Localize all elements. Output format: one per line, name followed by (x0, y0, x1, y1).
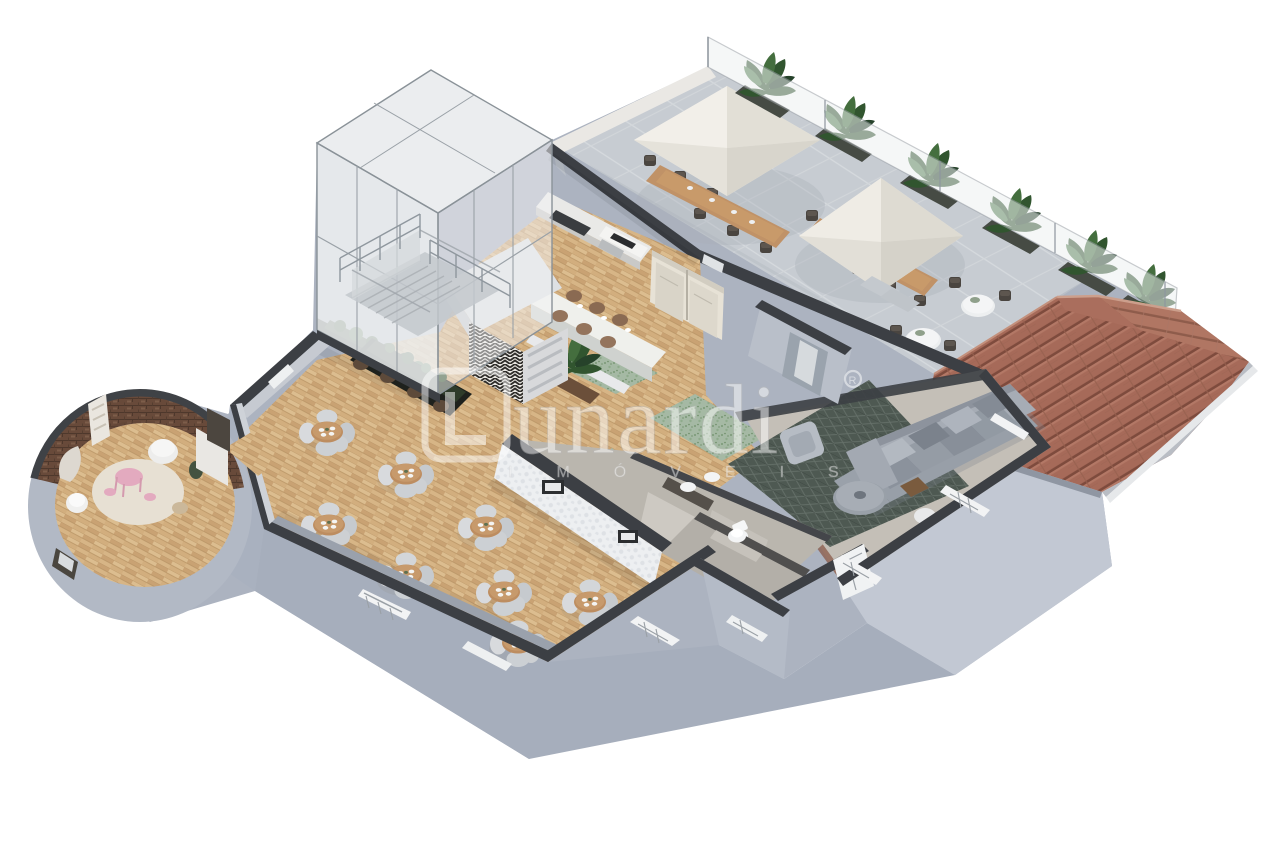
svg-text:IMÓVEIS: IMÓVEIS (508, 462, 883, 481)
svg-text:unardi: unardi (513, 364, 780, 475)
svg-text:R: R (849, 375, 857, 387)
